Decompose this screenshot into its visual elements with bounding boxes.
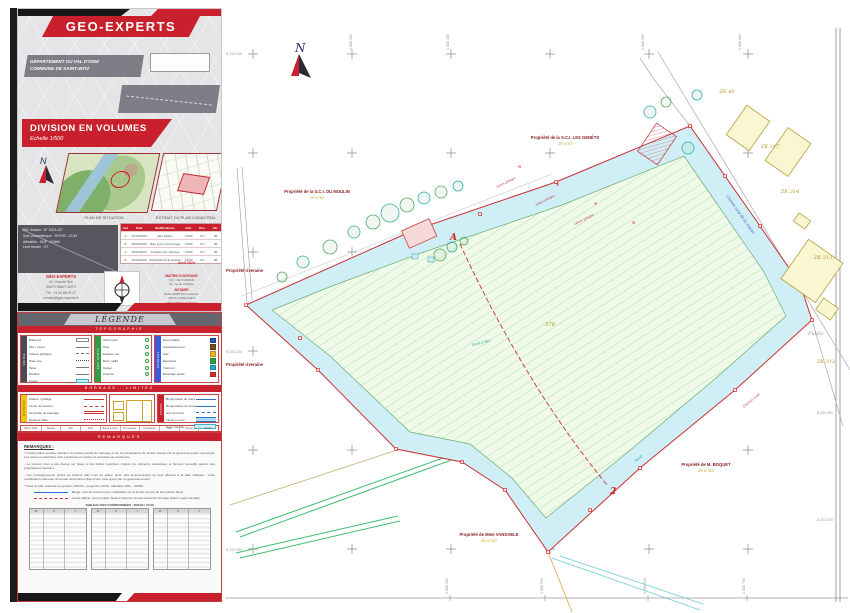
tree-icon [434,249,446,261]
legend-sample [84,419,104,420]
tree-icon [453,181,463,191]
note-red-line: Limite définie, point projeté, faisant l… [34,496,215,500]
coord-rows [30,513,86,569]
legend-item: Limite en eau [166,416,216,423]
legend-item: Limite de division [29,403,104,410]
legend-sample [76,360,89,361]
site-marker-ring [109,171,132,188]
legend-titlebar: LÉGENDE [18,313,221,326]
coord-rows [154,513,210,569]
color-chip [210,351,217,357]
legend-sample [145,366,149,370]
document-title-banner: DIVISION EN VOLUMES Echelle 1/500 [22,119,172,147]
note-label: Berge / axe du fossé tel que matérialisé… [72,490,183,494]
grid-label: 1 688 300 [349,34,353,50]
col-header: Date [130,224,148,231]
legend-item: Clôture grillagée [29,351,89,358]
fence-marker: ✕ [556,182,559,187]
highlighted-parcel [177,173,210,195]
remarks-panel: REMARQUES REMARQUES : * Limites telles q… [17,432,222,602]
volume-rect [113,412,124,421]
division-label-b: 2 [609,487,616,497]
color-chip [210,344,217,350]
tree-icon [435,186,447,198]
fence-marker: ✕ [594,201,597,206]
color-chip [210,365,217,371]
blue-line-sample [34,492,68,493]
legend-item: Eau potable [163,337,216,344]
revision-table: Ind Date Modifications Ech. Des. Vér. A1… [120,223,222,264]
parcel-label: ZK 48 [718,89,734,95]
owner-label: Propriété de la S.C.I. LES GENÊTS [531,135,600,140]
sheet-edge-bar [10,8,17,602]
legend-sample [84,399,104,400]
legend-box-reseaux: RÉSEAUX Eau potable Assainissement Gaz É… [154,335,219,383]
grid-label: 1 688 500 [641,34,645,50]
parcel-label: ZK 314 [780,189,799,195]
division-label-a: A [449,233,457,243]
col-header: Ech. [182,224,196,231]
tree-icon [400,198,414,212]
sidebar-north-label: N [40,156,47,166]
fence-marker: ✕ [632,220,635,225]
legend-sample [76,379,89,383]
owner-parcel: ZK n°57 [557,142,573,146]
remarks-paragraph: * Limites telles qu'elles résultent du p… [24,451,215,459]
field-number: 376 [545,322,556,328]
inset-caption-left: PLAN DE SITUATION [58,215,150,220]
coord-group: N°XY [91,508,149,570]
legend-item: Éclairage public [163,371,216,378]
grid-label: 1 688 500 [540,578,544,594]
legend-item: Emprise bâtie [29,416,104,423]
legend-sample [145,359,149,363]
file-info-box: Réf. dossier : N° 2023-157 Syst. planimé… [18,225,118,273]
owner-label: Propriété riveraine [226,362,264,367]
inset-caption-right: EXTRAIT DU PLAN CADASTRAL [146,215,222,220]
legend-sample [76,347,89,348]
legend-item: Berge basse du fossé [166,403,216,410]
legend-sample [76,338,89,342]
grid-label: 8 233 400 [226,350,242,354]
legend-item: Espace vert [103,351,149,358]
symbol-strip: Borne OGE▪ Repère⊗ Spit▲ Clou✕ Borne à c… [20,425,219,432]
office-line: contact@geo-experts.fr [18,296,104,301]
note-blue-line: Berge / axe du fossé tel que matérialisé… [34,490,215,494]
grid-label: 1 688 700 [742,578,746,594]
legend-division-zone: DIVISION Clôture / grillage Limite de di… [18,392,221,425]
basin [428,257,434,262]
public-label: Public [807,331,824,337]
legend-item: Télécom [163,364,216,371]
legend-sample [145,352,149,356]
owner-parcel: ZK n°322 [480,539,498,543]
remarks-paragraph: - Les renseignements portés au présent p… [24,473,215,481]
legend-item: Fossé [29,378,89,385]
legend-sample [145,372,149,376]
grid-label: 1 688 400 [445,578,449,594]
table-row: B06/07/2023 Mise à jour du bornage1/500 … [121,239,222,247]
color-chip [210,338,217,344]
legend-sample [84,406,104,407]
col-header: Modifications [148,224,181,231]
basin [412,254,418,259]
grid-label: 1 688 400 [446,34,450,50]
contact-line: 12, rue de la Mairie [140,282,222,286]
tree-icon [692,90,702,100]
parcel-label: ZK 317 [760,144,780,150]
grid-label: 8 233 500 [226,52,242,56]
tree-icon [661,97,671,107]
legend-item: Gaz [163,351,216,358]
revision-header: Ind Date Modifications Ech. Des. Vér. [121,224,222,231]
legend-panel: LÉGENDE TOPOGRAPHIE VOIRIE Bâtiment Mur … [17,312,222,432]
company-banner: GEO-EXPERTS [42,16,200,37]
top-band-black [18,9,130,16]
owner-parcel: ZK n°323 [697,469,715,473]
legend-sample [145,345,149,349]
legend-item: Arbre isolé [103,337,149,344]
north-label: N [294,41,306,55]
secondary-box [118,85,220,113]
parcel-label: ZK 313 [813,255,832,261]
volume-diagram [109,394,155,423]
legend-sample [76,367,89,368]
legend-item: Bois / taillis [103,357,149,364]
col-header: Vér. [209,224,222,231]
department-label: DÉPARTEMENT DU VAL D'OISE [30,58,138,65]
fence-marker: ✕ [518,164,521,169]
legend-sample [196,417,216,422]
grid-label: 8 233 300 [226,548,242,552]
note-label: Limite définie, point projeté, faisant l… [72,496,200,500]
compass-logo [104,271,140,306]
legend-item: Verger [103,364,149,371]
tree-icon [323,240,337,254]
legend-item: Bâtiment [29,337,89,344]
tree-icon [297,256,309,268]
legend-item: Haie vive [29,357,89,364]
coordinate-table-title: TABLEAU DES COORDONNÉES - RGF93 / CC49 [24,503,215,507]
table-row: A12/04/2023 1ère édition1/500 GTJB [121,231,222,239]
legend-item: Talus [29,364,89,371]
legend-sample [196,406,216,407]
north-dark [46,165,54,184]
office-address: GÉO-EXPERTS 42, Grande Rue 95470 SAINT-W… [18,271,104,305]
coordinate-table: TABLEAU DES COORDONNÉES - RGF93 / CC49 N… [24,503,215,570]
remarks-paragraph: * Fond de plan rattaché au système RGF93… [24,484,215,488]
remarks-heading: REMARQUES : [24,444,215,449]
legend-sample [76,374,89,375]
legend-item: Berge haute du fossé [166,396,216,403]
table-row: C18/10/2023 Création des volumes1/500 GT… [121,247,222,255]
col-header: Des. [196,224,209,231]
table-row: D22/01/2024 Modificatif de la division1/… [121,255,222,263]
cadastral-inset [151,153,222,211]
owner-parcel: ZK n°52 [309,196,325,200]
color-chip [210,372,217,378]
coord-rows [92,513,148,569]
title-block: GEO-EXPERTS DÉPARTEMENT DU VAL D'OISE CO… [17,8,222,312]
tree-icon [366,215,380,229]
legend-sample [84,411,104,414]
tree-icon [447,242,457,252]
bottom-band-black [18,593,122,601]
remarks-paragraph: - Le présent plan a été dressé sur place… [24,462,215,470]
grid-label: 1 688 600 [643,578,647,594]
legend-item: Pelouse [103,371,149,378]
color-chip [210,358,217,364]
owner-label: Propriété de la S.C.I. DU MOULIN [284,189,350,194]
legend-box-voirie: VOIRIE Bâtiment Mur / muret Clôture gril… [20,335,92,383]
commune-label: COMMUNE DE SAINT-WITZ [30,65,138,72]
document-scale: Echelle 1/500 [30,136,164,142]
volume-rect [113,401,124,410]
owner-label: Propriété de Mme VANDAELE [459,532,518,537]
legend-topo-zone: VOIRIE Bâtiment Mur / muret Clôture gril… [18,333,221,385]
legend-item: Bordure [29,371,89,378]
coord-group: N°XY [29,508,87,570]
legend-box-vert: ESP. VERTS Arbre isolé Haie Espace vert … [94,335,152,383]
tree-icon [644,106,656,118]
tree-icon [348,226,360,238]
grid-label: 8 233 300 [817,518,833,522]
remarks-band: REMARQUES [18,433,221,441]
legend-sample [196,412,216,413]
legend-item: Axe du fossé [166,410,216,417]
contact-line: 95270 LUZARCHES [140,296,222,300]
legend-box-fosse: FOSSÉ Berge haute du fossé Berge basse d… [157,394,219,423]
tree-icon [381,204,399,222]
legend-item: Clôture / grillage [29,396,104,403]
volume-rect [126,400,152,422]
tree-icon [682,142,694,154]
parcel-label: ZK 312 [816,359,835,365]
coord-group: N°XY [153,508,211,570]
situation-map-inset [56,153,161,213]
legend-sample [196,399,216,400]
document-title: DIVISION EN VOLUMES [30,123,164,134]
legend-band-mid: BORNAGE - LIMITES [18,385,221,392]
legend-sample [76,353,89,354]
owner-label: Propriété riveraine [226,268,264,273]
tree-icon [277,272,287,282]
legend-item: Mur / muret [29,344,89,351]
legend-item: Électricité [163,357,216,364]
location-box: DÉPARTEMENT DU VAL D'OISE COMMUNE DE SAI… [24,55,144,77]
legend-box-division: DIVISION Clôture / grillage Limite de di… [20,394,107,423]
compass-icon [109,274,135,304]
legend-band-topo: TOPOGRAPHIE [18,326,221,333]
office-row: GÉO-EXPERTS 42, Grande Rue 95470 SAINT-W… [18,271,222,305]
legend-item: Haie [103,344,149,351]
grid-label: 8 233 400 [817,411,833,415]
owner-label: Propriété de M. BOQUET [681,462,731,467]
top-band-red [151,9,221,16]
legend-sample [145,338,149,342]
bottom-band-red [127,593,221,601]
legend-item: Assainissement [163,344,216,351]
red-dashed-sample [34,498,68,499]
legend-title: LÉGENDE [64,314,176,325]
tree-icon [418,192,430,204]
tree-icon [460,237,468,245]
contacts-column: MAÎTRE D'OUVRAGE S.C.I. DES MARAIS 12, r… [140,271,222,305]
sidebar-north-arrow: N [36,155,56,185]
bottom-band-red [127,303,221,311]
bottom-band-black [18,303,122,311]
col-header: Ind [121,224,130,231]
grid-label: 1 688 600 [738,34,742,50]
info-line: Levé terrain : GT [23,245,113,251]
reference-box [150,53,210,72]
issue-note: Avril 2024 [178,261,195,265]
legend-item: Servitude de passage [29,410,104,417]
company-name: GEO-EXPERTS [66,19,176,34]
north-red [39,165,46,183]
plan-sheet: 1 688 300 1 688 400 1 688 500 1 688 600 … [0,0,850,613]
